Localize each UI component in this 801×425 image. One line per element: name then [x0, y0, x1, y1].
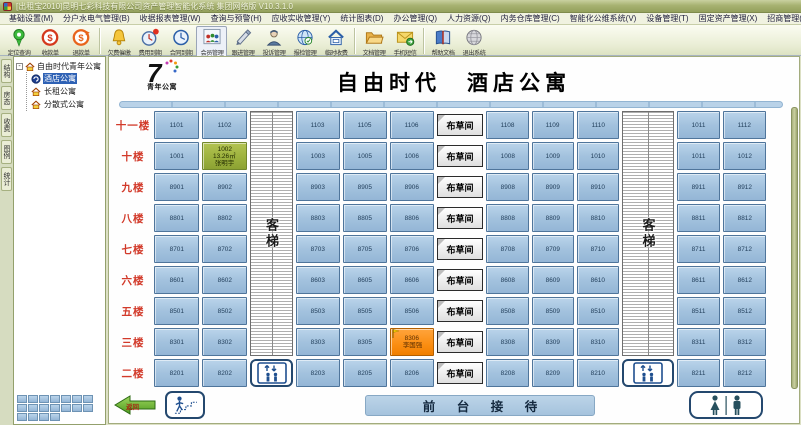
pen-hand-icon [233, 28, 253, 47]
room-8601[interactable]: 8601 [154, 266, 199, 294]
room-8301[interactable]: 8301 [154, 328, 199, 356]
house-fee-icon [326, 28, 346, 47]
room-1105[interactable]: 1105 [343, 111, 387, 139]
room-8203[interactable]: 8203 [296, 359, 340, 387]
room-1103[interactable]: 1103 [296, 111, 340, 139]
room-8205[interactable]: 8205 [343, 359, 387, 387]
toolbar-complaint-person-button[interactable]: 投诉管理 [258, 26, 289, 58]
room-8211[interactable]: 8211 [677, 359, 720, 387]
room-number: 8612 [737, 277, 751, 283]
room-number: 8901 [169, 184, 183, 190]
room-number: 8810 [591, 215, 605, 221]
globe-check-icon [295, 28, 315, 47]
elevator-shaft-label: 客梯 [639, 218, 658, 250]
room-8708[interactable]: 8708 [486, 235, 529, 263]
menu-item-5[interactable]: 统计图表(D) [335, 13, 388, 24]
toolbar-house-fee-button[interactable]: 临时收费 [320, 26, 351, 58]
room-1009[interactable]: 1009 [532, 142, 574, 170]
room-number: 8905 [358, 184, 372, 190]
room-number: 8208 [500, 370, 514, 376]
room-8912[interactable]: 8912 [723, 173, 766, 201]
toolbar: 定位查询$收款单$退款单欠费催缴费用到期合同到期会员管理跟进管理投诉管理报检管理… [0, 25, 801, 56]
mini-map-cell[interactable] [28, 413, 38, 421]
toolbar-exit-globe-button[interactable]: 退出系统 [458, 26, 489, 58]
page-title: 自由时代 酒店公寓 [109, 67, 799, 97]
room-8809[interactable]: 8809 [532, 204, 574, 232]
room-8202[interactable]: 8202 [202, 359, 247, 387]
room-8705[interactable]: 8705 [343, 235, 387, 263]
room-number: 8603 [311, 277, 325, 283]
sidebar-tab-strip: 结构房态收费图例统计 [0, 56, 13, 425]
room-number: 8301 [169, 339, 183, 345]
room-number: 8806 [405, 215, 419, 221]
mini-map-cell[interactable] [17, 404, 27, 412]
room-number: 8311 [692, 339, 706, 345]
room-8310[interactable]: 8310 [577, 328, 619, 356]
linen-room[interactable]: 布草间 [437, 176, 483, 198]
mini-map-cell[interactable] [28, 395, 38, 403]
room-number: 8706 [405, 246, 419, 252]
linen-room[interactable]: 布草间 [437, 145, 483, 167]
mini-map-cell[interactable] [39, 404, 49, 412]
menu-item-0[interactable]: 基础设置(M) [4, 13, 58, 24]
mini-map-cell[interactable] [28, 404, 38, 412]
restroom-icon [703, 394, 749, 416]
room-number: 8309 [546, 339, 560, 345]
toolbar-separator [99, 28, 100, 54]
room-8903[interactable]: 8903 [296, 173, 340, 201]
room-number: 1006 [405, 153, 419, 159]
menu-item-11[interactable]: 固定资产管理(X) [694, 13, 763, 24]
toolbar-globe-check-button[interactable]: 报检管理 [289, 26, 320, 58]
room-8312[interactable]: 8312 [723, 328, 766, 356]
room-8503[interactable]: 8503 [296, 297, 340, 325]
horizontal-scrollbar[interactable] [119, 101, 783, 108]
room-number: 8803 [311, 215, 325, 221]
floor-label: 十楼 [115, 142, 151, 170]
room-number: 8202 [217, 370, 231, 376]
room-8609[interactable]: 8609 [532, 266, 574, 294]
tree-root-label: 自由时代青年公寓 [37, 61, 101, 72]
room-number: 8601 [169, 277, 183, 283]
room-number: 8702 [217, 246, 231, 252]
mini-map-cell[interactable] [72, 395, 82, 403]
room-number: 8708 [500, 246, 514, 252]
room-8911[interactable]: 8911 [677, 173, 720, 201]
room-number: 8512 [737, 308, 751, 314]
floor-label: 九楼 [115, 173, 151, 201]
sidebar-tab-3[interactable]: 图例 [1, 140, 12, 164]
toolbar-clock-alert-button[interactable]: 费用到期 [134, 26, 165, 58]
mini-map-cell[interactable] [50, 404, 60, 412]
room-occupant: 李国强 [402, 342, 421, 348]
room-1002[interactable]: 100213.26㎡张明宇 [202, 142, 247, 170]
room-8802[interactable]: 8802 [202, 204, 247, 232]
room-number: 8908 [500, 184, 514, 190]
room-1109[interactable]: 1109 [532, 111, 574, 139]
room-number: 1003 [311, 153, 325, 159]
complaint-person-icon [264, 28, 284, 47]
room-8702[interactable]: 8702 [202, 235, 247, 263]
toolbar-separator [354, 28, 355, 54]
toolbar-pen-hand-button[interactable]: 跟进管理 [227, 26, 258, 58]
help-book-icon [433, 28, 453, 47]
room-number: 1011 [692, 153, 706, 159]
room-1108[interactable]: 1108 [486, 111, 529, 139]
room-8305[interactable]: 8305 [343, 328, 387, 356]
room-8206[interactable]: 8206 [390, 359, 434, 387]
room-number: 1005 [358, 153, 372, 159]
floor-label: 七楼 [115, 235, 151, 263]
room-8901[interactable]: 8901 [154, 173, 199, 201]
room-number: 1109 [546, 122, 560, 128]
room-number: 8211 [692, 370, 706, 376]
room-number: 1011 [692, 122, 706, 128]
room-number: 8305 [358, 339, 372, 345]
tree-expander-icon[interactable]: - [16, 63, 23, 70]
room-number: 8510 [591, 308, 605, 314]
location-pin-icon [9, 28, 29, 47]
back-button-label: 返回 [126, 401, 139, 411]
menu-item-4[interactable]: 应收实收管理(Y) [267, 13, 336, 24]
front-desk-bar[interactable]: 前 台 接 待 [365, 395, 595, 416]
floor-label: 三楼 [115, 328, 151, 356]
room-8811[interactable]: 8811 [677, 204, 720, 232]
room-number: 8502 [217, 308, 231, 314]
room-number: 8902 [217, 184, 231, 190]
room-8311[interactable]: 8311 [677, 328, 720, 356]
menu-item-6[interactable]: 办公管理(Q) [388, 13, 442, 24]
menu-item-7[interactable]: 人力资源(Q) [442, 13, 496, 24]
room-number: 8605 [358, 277, 372, 283]
home-icon [31, 87, 41, 97]
room-number: 8511 [692, 308, 706, 314]
room-8706[interactable]: 8706 [390, 235, 434, 263]
room-8506[interactable]: 8506 [390, 297, 434, 325]
window-title: [出租宝2010]昆明七彩科技有限公司资产管理智能化系统 集团网络版 V10.3… [16, 1, 293, 12]
room-8803[interactable]: 8803 [296, 204, 340, 232]
room-1012[interactable]: 1012 [723, 142, 766, 170]
room-number: 8701 [169, 246, 183, 252]
linen-room[interactable]: 布草间 [437, 238, 483, 260]
room-number: 8609 [546, 277, 560, 283]
room-number: 8203 [311, 370, 325, 376]
room-number: 8909 [546, 184, 560, 190]
room-number: 8611 [692, 277, 706, 283]
svg-text:$: $ [47, 33, 53, 44]
room-8812[interactable]: 8812 [723, 204, 766, 232]
menu-item-9[interactable]: 智能化公维系统(V) [565, 13, 642, 24]
room-number: 8206 [405, 370, 419, 376]
room-1008[interactable]: 1008 [486, 142, 529, 170]
sidebar-tab-2[interactable]: 收费 [1, 113, 12, 137]
room-8505[interactable]: 8505 [343, 297, 387, 325]
sidebar-tab-0[interactable]: 结构 [1, 59, 12, 83]
room-8712[interactable]: 8712 [723, 235, 766, 263]
tree-item-0[interactable]: 酒店公寓 [27, 72, 103, 85]
floor-map-panel: 7 青年公寓 自由时代 酒店公寓 十一楼11011102110311051106… [108, 56, 800, 424]
room-number: 8303 [311, 339, 325, 345]
toolbar-separator [423, 28, 424, 54]
room-number: 8312 [737, 339, 751, 345]
menu-item-10[interactable]: 设备管理(T) [641, 13, 693, 24]
room-8605[interactable]: 8605 [343, 266, 387, 294]
sidebar: -自由时代青年公寓酒店公寓长租公寓分散式公寓 [13, 56, 106, 425]
tree-item-label: 长租公寓 [43, 86, 77, 97]
toolbar-refund-money-button[interactable]: $退款单 [65, 26, 96, 58]
menu-item-12[interactable]: 招商管理(L) [762, 13, 801, 24]
restroom-button[interactable] [689, 391, 763, 419]
room-8611[interactable]: 8611 [677, 266, 720, 294]
room-8602[interactable]: 8602 [202, 266, 247, 294]
linen-room[interactable]: 布草间 [437, 362, 483, 384]
exit-globe-icon [464, 28, 484, 47]
mini-map-cell[interactable] [17, 395, 27, 403]
room-8711[interactable]: 8711 [677, 235, 720, 263]
room-number: 8201 [169, 370, 183, 376]
tree-item-2[interactable]: 分散式公寓 [27, 98, 103, 111]
room-number: 8205 [358, 370, 372, 376]
menu-item-3[interactable]: 查询与预警(H) [206, 13, 267, 24]
toolbar-folder-button[interactable]: 文档管理 [358, 26, 389, 58]
room-8509[interactable]: 8509 [532, 297, 574, 325]
linen-room[interactable]: 布草间 [437, 300, 483, 322]
room-8909[interactable]: 8909 [532, 173, 574, 201]
tree-children: 酒店公寓长租公寓分散式公寓 [26, 72, 103, 111]
room-1010[interactable]: 1010 [577, 142, 619, 170]
elevator-shaft-label: 客梯 [262, 218, 281, 250]
room-number: 8308 [500, 339, 514, 345]
floor-label: 十一楼 [115, 111, 151, 139]
room-8806[interactable]: 8806 [390, 204, 434, 232]
room-number: 8209 [546, 370, 560, 376]
room-8306[interactable]: 8306李国强 [390, 328, 434, 356]
menu-item-8[interactable]: 内务仓库管理(C) [496, 13, 565, 24]
room-number: 1010 [591, 153, 605, 159]
room-8606[interactable]: 8606 [390, 266, 434, 294]
room-8210[interactable]: 8210 [577, 359, 619, 387]
sidebar-tab-4[interactable]: 统计 [1, 167, 12, 191]
room-8805[interactable]: 8805 [343, 204, 387, 232]
room-8309[interactable]: 8309 [532, 328, 574, 356]
mini-map-cell[interactable] [83, 395, 93, 403]
room-8905[interactable]: 8905 [343, 173, 387, 201]
room-8512[interactable]: 8512 [723, 297, 766, 325]
receipt-money-icon: $ [40, 28, 60, 47]
room-number: 8306 [405, 335, 419, 341]
room-1101[interactable]: 1101 [154, 111, 199, 139]
room-number: 8802 [217, 215, 231, 221]
room-number: 8801 [169, 215, 183, 221]
room-number: 8703 [311, 246, 325, 252]
room-8810[interactable]: 8810 [577, 204, 619, 232]
stairs-person-icon [170, 394, 200, 416]
room-8511[interactable]: 8511 [677, 297, 720, 325]
room-number: 8710 [591, 246, 605, 252]
app-icon [3, 2, 12, 11]
room-number: 1008 [500, 153, 514, 159]
menu-bar: 基础设置(M)分户水电气管理(B)收据报表管理(W)查询与预警(H)应收实收管理… [0, 13, 801, 25]
refund-money-icon: $ [71, 28, 91, 47]
room-8201[interactable]: 8201 [154, 359, 199, 387]
floor-label: 六楼 [115, 266, 151, 294]
room-number: 8505 [358, 308, 372, 314]
room-number: 8210 [591, 370, 605, 376]
room-1011[interactable]: 1011 [677, 142, 720, 170]
room-number: 8805 [358, 215, 372, 221]
room-8610[interactable]: 8610 [577, 266, 619, 294]
mini-map-cell[interactable] [72, 404, 82, 412]
stairs-button[interactable] [165, 391, 205, 419]
home-icon [25, 62, 35, 72]
room-number: 8911 [692, 184, 706, 190]
room-number: 1103 [311, 122, 325, 128]
mini-map-row [17, 413, 93, 421]
toolbar-help-book-button[interactable]: 帮助文档 [427, 26, 458, 58]
tree-item-label: 酒店公寓 [43, 73, 77, 84]
floor-label: 二楼 [115, 359, 151, 387]
mini-map-cell[interactable] [39, 395, 49, 403]
room-number: 1002 [217, 146, 231, 152]
room-8709[interactable]: 8709 [532, 235, 574, 263]
room-8603[interactable]: 8603 [296, 266, 340, 294]
linen-room[interactable]: 布草间 [437, 114, 483, 136]
toolbar-sms-envelope-button[interactable]: 手机短信 [389, 26, 420, 58]
room-1003[interactable]: 1003 [296, 142, 340, 170]
flag-icon [392, 329, 400, 338]
elevator-icon[interactable] [622, 359, 674, 387]
tree-item-1[interactable]: 长租公寓 [27, 85, 103, 98]
room-number: 1101 [170, 122, 184, 128]
room-number: 8302 [217, 339, 231, 345]
room-number: 1001 [169, 153, 183, 159]
room-1005[interactable]: 1005 [343, 142, 387, 170]
linen-room[interactable]: 布草间 [437, 207, 483, 229]
toolbar-clock-blue-button[interactable]: 合同到期 [165, 26, 196, 58]
room-1106[interactable]: 1106 [390, 111, 434, 139]
room-8508[interactable]: 8508 [486, 297, 529, 325]
room-8308[interactable]: 8308 [486, 328, 529, 356]
room-number: 8606 [405, 277, 419, 283]
elevator-icon[interactable] [250, 359, 293, 387]
room-number: 1102 [218, 122, 232, 128]
room-8801[interactable]: 8801 [154, 204, 199, 232]
room-8212[interactable]: 8212 [723, 359, 766, 387]
bell-icon [109, 28, 129, 47]
room-number: 1108 [501, 122, 515, 128]
room-8910[interactable]: 8910 [577, 173, 619, 201]
mini-map-cell[interactable] [39, 413, 49, 421]
room-number: 8809 [546, 215, 560, 221]
room-number: 1105 [358, 122, 372, 128]
room-8701[interactable]: 8701 [154, 235, 199, 263]
room-number: 8608 [500, 277, 514, 283]
mini-map-row [17, 395, 93, 403]
room-8908[interactable]: 8908 [486, 173, 529, 201]
mini-map-row [17, 404, 93, 412]
room-number: 1009 [546, 153, 560, 159]
room-number: 1110 [591, 122, 604, 128]
room-number: 8509 [546, 308, 560, 314]
toolbar-location-pin-button[interactable]: 定位查询 [3, 26, 34, 58]
room-8302[interactable]: 8302 [202, 328, 247, 356]
tree-root[interactable]: -自由时代青年公寓 [16, 61, 103, 72]
linen-room[interactable]: 布草间 [437, 269, 483, 291]
room-number: 8310 [591, 339, 605, 345]
toolbar-receipt-money-button[interactable]: $收款单 [34, 26, 65, 58]
svg-text:$: $ [78, 33, 84, 44]
room-occupant: 张明宇 [215, 160, 234, 166]
room-8209[interactable]: 8209 [532, 359, 574, 387]
room-8510[interactable]: 8510 [577, 297, 619, 325]
sidebar-tab-1[interactable]: 房态 [1, 86, 12, 110]
room-number: 8212 [737, 370, 751, 376]
room-area: 13.26㎡ [213, 153, 236, 159]
room-number: 8903 [311, 184, 325, 190]
mini-map-cell[interactable] [83, 404, 93, 412]
room-8710[interactable]: 8710 [577, 235, 619, 263]
linen-room[interactable]: 布草间 [437, 331, 483, 353]
room-8703[interactable]: 8703 [296, 235, 340, 263]
room-8208[interactable]: 8208 [486, 359, 529, 387]
room-8303[interactable]: 8303 [296, 328, 340, 356]
room-1001[interactable]: 1001 [154, 142, 199, 170]
mini-map-cell[interactable] [50, 395, 60, 403]
room-1102[interactable]: 1102 [202, 111, 247, 139]
mini-map-cell[interactable] [61, 404, 71, 412]
mini-map-cell[interactable] [50, 413, 60, 421]
room-number: 8610 [591, 277, 605, 283]
room-8612[interactable]: 8612 [723, 266, 766, 294]
room-number: 8506 [405, 308, 419, 314]
toolbar-bell-button[interactable]: 欠费催缴 [103, 26, 134, 58]
elevator-shaft-right: 客梯 [622, 111, 674, 356]
room-8501[interactable]: 8501 [154, 297, 199, 325]
room-number: 8501 [169, 308, 183, 314]
room-8902[interactable]: 8902 [202, 173, 247, 201]
menu-item-2[interactable]: 收据报表管理(W) [135, 13, 206, 24]
room-number: 8709 [546, 246, 560, 252]
toolbar-members-button[interactable]: 会员管理 [196, 26, 227, 58]
footer-controls: 返回 前 台 接 待 [113, 390, 791, 420]
room-8808[interactable]: 8808 [486, 204, 529, 232]
elevator-shaft-left: 客梯 [250, 111, 293, 356]
room-number: 8503 [311, 308, 325, 314]
room-8502[interactable]: 8502 [202, 297, 247, 325]
room-1110[interactable]: 1110 [577, 111, 619, 139]
sms-envelope-icon [395, 28, 415, 47]
room-number: 8712 [737, 246, 751, 252]
mini-map-cell[interactable] [61, 395, 71, 403]
clock-blue-icon [171, 28, 191, 47]
back-button[interactable]: 返回 [113, 393, 157, 417]
room-number: 1112 [738, 122, 751, 128]
home-icon [31, 100, 41, 110]
vertical-scrollbar[interactable] [791, 107, 798, 389]
mini-map-cell[interactable] [17, 413, 27, 421]
room-8906[interactable]: 8906 [390, 173, 434, 201]
folder-icon [364, 28, 384, 47]
menu-item-1[interactable]: 分户水电气管理(B) [58, 13, 135, 24]
hotel-logo-icon [31, 74, 41, 84]
room-1006[interactable]: 1006 [390, 142, 434, 170]
room-number: 8711 [692, 246, 706, 252]
room-8608[interactable]: 8608 [486, 266, 529, 294]
room-number: 8705 [358, 246, 372, 252]
room-1112[interactable]: 1112 [723, 111, 766, 139]
room-1011[interactable]: 1011 [677, 111, 720, 139]
room-grid: 十一楼1101110211031105110611081109111010111… [115, 111, 766, 387]
